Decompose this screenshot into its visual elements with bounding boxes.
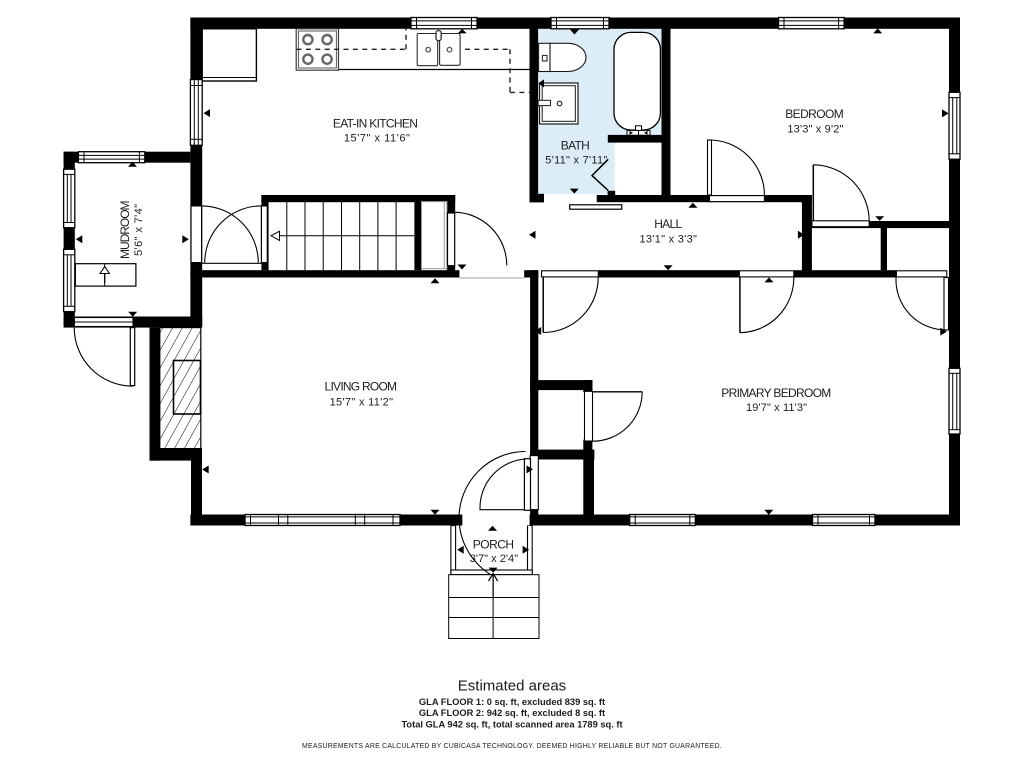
svg-text:GLA FLOOR 1: 0 sq. ft, exclude: GLA FLOOR 1: 0 sq. ft, excluded 839 sq. … [419, 697, 605, 707]
svg-text:MEASUREMENTS ARE CALCULATED BY: MEASUREMENTS ARE CALCULATED BY CUBICASA … [302, 743, 722, 750]
svg-text:5'6" x 7'4": 5'6" x 7'4" [133, 204, 145, 256]
svg-text:3'7" x 2'4": 3'7" x 2'4" [470, 553, 518, 565]
svg-text:5'11" x 7'11": 5'11" x 7'11" [545, 154, 607, 166]
svg-text:PORCH: PORCH [473, 538, 514, 552]
svg-text:13'1" x 3'3": 13'1" x 3'3" [639, 233, 697, 245]
svg-text:BATH: BATH [561, 139, 590, 153]
svg-text:GLA FLOOR 2: 942 sq. ft, exclu: GLA FLOOR 2: 942 sq. ft, excluded 8 sq. … [419, 708, 605, 718]
svg-text:MUDROOM: MUDROOM [118, 200, 132, 259]
svg-text:Total GLA 942 sq. ft, total sc: Total GLA 942 sq. ft, total scanned area… [401, 720, 622, 730]
svg-text:HALL: HALL [654, 217, 682, 231]
svg-text:EAT-IN KITCHEN: EAT-IN KITCHEN [333, 117, 418, 131]
svg-text:LIVING ROOM: LIVING ROOM [325, 380, 398, 394]
svg-text:15'7" x 11'2": 15'7" x 11'2" [330, 396, 393, 408]
svg-text:15'7" x 11'6": 15'7" x 11'6" [344, 132, 410, 144]
svg-text:PRIMARY BEDROOM: PRIMARY BEDROOM [721, 386, 831, 400]
svg-text:Estimated areas: Estimated areas [458, 678, 566, 695]
svg-text:13'3" x 9'2": 13'3" x 9'2" [787, 124, 843, 136]
svg-text:19'7" x 11'3": 19'7" x 11'3" [746, 402, 807, 414]
svg-text:BEDROOM: BEDROOM [785, 107, 844, 121]
